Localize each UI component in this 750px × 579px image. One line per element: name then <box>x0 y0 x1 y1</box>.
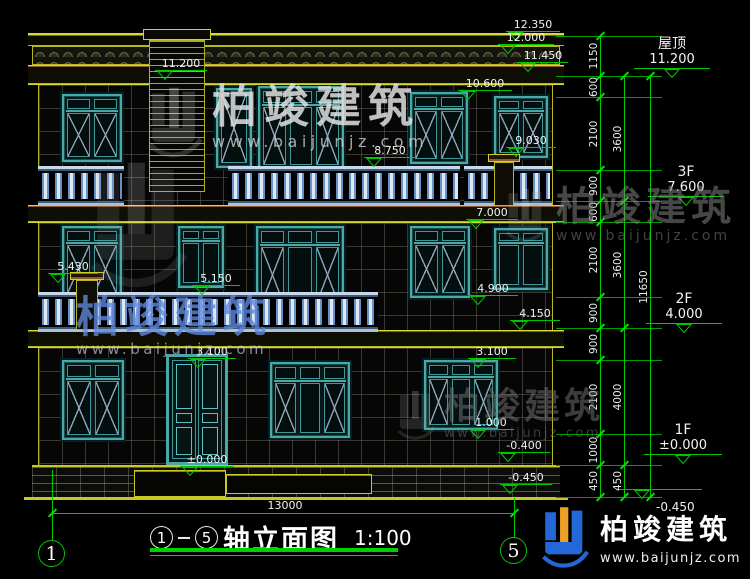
window-body <box>220 92 248 164</box>
window-pane <box>499 245 519 285</box>
window-pane <box>300 367 321 379</box>
dimension-value: 3600 <box>612 240 624 290</box>
elevation-triangle-icon <box>508 148 524 157</box>
door-panel <box>202 427 218 455</box>
elevation-triangle-icon <box>194 286 210 295</box>
elevation-value: 3.100 <box>188 346 236 358</box>
stair-bulkhead-cap <box>143 29 211 40</box>
window-body <box>66 112 118 158</box>
brand-text: 柏竣建筑 www.baijunjz.com <box>600 508 741 566</box>
floor-name: 屋顶 <box>634 36 710 52</box>
title-scale: 1:100 <box>354 526 412 550</box>
elevation-triangle-icon <box>500 45 516 54</box>
elevation-triangle-icon <box>366 158 382 167</box>
window <box>270 362 350 438</box>
elevation-triangle-icon <box>470 296 486 305</box>
window-pane <box>95 381 119 435</box>
elevation-marker: 3.100 <box>468 346 516 368</box>
dimension-value: 600 <box>588 62 600 112</box>
floor-label-3f: 3F 7.600 <box>648 164 724 206</box>
door-panel <box>202 413 218 424</box>
grid-line-5 <box>514 498 515 538</box>
window-pane <box>288 231 311 243</box>
window <box>410 92 468 164</box>
window <box>216 88 252 168</box>
entrance-door <box>166 354 228 465</box>
elevation-marker: 7.000 <box>466 207 518 229</box>
window-pane <box>67 113 90 157</box>
window-pane <box>275 367 296 379</box>
dimension-value: 900 <box>588 319 600 369</box>
floor-level: 7.600 <box>648 180 724 195</box>
window-pane <box>415 231 438 241</box>
level-triangle-icon <box>664 69 680 78</box>
axis-dash <box>178 537 190 539</box>
window-pane <box>300 383 321 433</box>
parapet-coping <box>28 33 564 46</box>
window-body <box>274 382 346 434</box>
grid-bubble-1: 1 <box>38 540 65 567</box>
elevation-marker: 3.100 <box>188 346 236 368</box>
dimension-value: 2100 <box>588 235 600 285</box>
window-transom <box>498 232 544 244</box>
window-pane <box>499 233 519 241</box>
window-pane <box>429 379 448 425</box>
level-triangle-icon <box>676 324 692 333</box>
axis-circle-end: 5 <box>195 526 218 549</box>
elevation-marker: 11.450 <box>518 50 568 72</box>
window-body <box>414 244 466 294</box>
window-transom <box>414 230 466 244</box>
dimension-chain-line <box>624 76 625 497</box>
door-panel <box>176 413 192 424</box>
dimension-value: 2100 <box>588 109 600 159</box>
floor-name: 3F <box>648 164 724 180</box>
window-pane <box>263 107 286 165</box>
window-pane <box>415 245 438 293</box>
elevation-value: 11.200 <box>155 58 207 70</box>
window <box>62 94 122 162</box>
floor-level: ±0.000 <box>644 438 722 453</box>
window-body <box>414 110 464 160</box>
extension-line <box>556 465 662 466</box>
balusters <box>230 173 458 199</box>
elevation-value: 4.900 <box>468 283 518 295</box>
elevation-triangle-icon <box>157 71 173 80</box>
floor-level: 4.000 <box>646 307 722 322</box>
window-body <box>262 106 340 166</box>
elevation-marker: 5.430 <box>48 261 98 283</box>
elevation-value: 4.150 <box>510 308 560 320</box>
extension-line <box>556 170 662 171</box>
window-pane <box>429 365 448 375</box>
dimension-value: 600 <box>588 187 600 237</box>
balusters <box>40 173 122 199</box>
bottom-dimension-value: 13000 <box>240 499 330 512</box>
window-pane <box>183 231 199 239</box>
pillar <box>494 162 514 206</box>
window-pane <box>67 381 91 435</box>
roof-tile-course <box>32 46 560 65</box>
elevation-marker: 4.900 <box>468 283 518 305</box>
elevation-value: 1.000 <box>468 417 514 429</box>
elevation-marker: 1.000 <box>468 417 514 439</box>
window-transom <box>260 230 340 246</box>
grid-line-1 <box>52 470 53 540</box>
window-pane <box>94 231 117 241</box>
window-transom <box>274 366 346 382</box>
extension-line <box>556 222 662 223</box>
axis-circle-start: 1 <box>150 526 173 549</box>
dimension-value: 2100 <box>588 372 600 422</box>
floor-label-2f: 2F 4.000 <box>646 291 722 333</box>
bottom-dimension-line <box>52 513 514 514</box>
elevation-triangle-icon <box>502 485 518 494</box>
door-leaf <box>172 360 196 459</box>
window-pane <box>261 231 284 243</box>
window-transom <box>182 230 220 242</box>
window-pane <box>95 365 119 377</box>
floor-label-roof: 屋顶 11.200 <box>634 36 710 78</box>
dimension-value: 450 <box>588 456 600 506</box>
elevation-marker: 5.150 <box>192 273 240 295</box>
window-transom <box>414 96 464 110</box>
window-pane <box>499 101 519 109</box>
elevation-triangle-icon <box>500 453 516 462</box>
window-pane <box>67 231 90 241</box>
window-pane <box>316 231 339 243</box>
window-pane <box>94 99 117 109</box>
window-pane <box>275 383 296 433</box>
window-pane <box>415 111 437 159</box>
door-panel <box>202 364 218 409</box>
window-pane <box>523 233 543 241</box>
door-leaf <box>198 360 222 459</box>
window-transom <box>262 90 340 106</box>
window-body <box>498 244 544 286</box>
grid-bubble-5: 5 <box>500 537 527 564</box>
elevation-marker: 9.030 <box>506 135 556 157</box>
window <box>62 360 124 440</box>
elevation-value: 8.750 <box>364 145 416 157</box>
door-panel <box>176 364 192 409</box>
window-pane <box>523 245 543 285</box>
elevation-value: 12.000 <box>498 32 554 44</box>
elevation-drawing-canvas: 13000 1 5 屋顶 11.200 3F 7.600 2F 4.000 1F… <box>0 0 750 579</box>
elevation-value: 10.600 <box>458 78 512 90</box>
floor-name: 2F <box>646 291 722 307</box>
window-transom <box>66 98 118 112</box>
balustrade <box>38 166 124 206</box>
window-transom <box>66 230 118 244</box>
window-pane <box>67 365 91 377</box>
floor-level: 11.200 <box>634 52 710 67</box>
window-pane <box>324 383 345 433</box>
elevation-triangle-icon <box>190 359 206 368</box>
dimension-value: 3600 <box>612 114 624 164</box>
dimension-value: 4000 <box>612 372 624 422</box>
dimension-chain-line <box>600 36 601 497</box>
elevation-marker: 10.600 <box>458 78 512 100</box>
window-pane <box>441 111 463 159</box>
elevation-value: 7.000 <box>466 207 518 219</box>
watermark-url: www.baijunjz.com <box>556 228 736 244</box>
elevation-value: 9.030 <box>506 135 556 147</box>
elevation-triangle-icon <box>460 91 476 100</box>
elevation-triangle-icon <box>468 220 484 229</box>
extension-line <box>556 201 662 202</box>
window-body <box>66 380 120 436</box>
elevation-value: 12.350 <box>506 19 560 31</box>
window <box>494 228 548 290</box>
dimension-value: 450 <box>612 456 624 506</box>
title-underline-thin <box>150 555 398 556</box>
elevation-marker: -0.450 <box>500 472 552 494</box>
floor-label-1f: 1F ±0.000 <box>644 422 722 464</box>
door-panel <box>176 427 192 455</box>
extension-line <box>556 360 662 361</box>
elevation-marker: 4.150 <box>510 308 560 330</box>
elevation-value: -0.400 <box>498 440 550 452</box>
level-line-minus450 <box>616 489 702 490</box>
floor-name: 1F <box>644 422 722 438</box>
window-pane <box>221 93 247 163</box>
level-triangle-icon <box>675 455 691 464</box>
elevation-value: 5.150 <box>192 273 240 285</box>
elevation-triangle-icon <box>182 467 198 476</box>
window-pane <box>290 107 313 165</box>
elevation-triangle-icon <box>50 274 66 283</box>
elevation-value: 11.450 <box>518 50 568 62</box>
brand-url: www.baijunjz.com <box>600 551 741 566</box>
window-pane <box>203 231 219 239</box>
elevation-triangle-icon <box>512 321 528 330</box>
window-pane <box>442 231 465 241</box>
elevation-marker: -0.400 <box>498 440 550 462</box>
balustrade <box>228 166 460 206</box>
window-pane <box>290 91 313 103</box>
brand-logo-icon <box>540 504 590 570</box>
window-pane <box>67 99 90 109</box>
window-pane <box>523 101 543 109</box>
brand-name: 柏竣建筑 <box>600 508 741 548</box>
window-pane <box>263 91 286 103</box>
elevation-marker: ±0.000 <box>180 454 234 476</box>
level-triangle-icon <box>634 490 650 499</box>
window-pane <box>415 97 437 107</box>
elevation-triangle-icon <box>520 63 536 72</box>
brand-logo-block: 柏竣建筑 www.baijunjz.com <box>540 504 741 570</box>
elevation-value: -0.450 <box>500 472 552 484</box>
elevation-value: 5.430 <box>48 261 98 273</box>
elevation-value: ±0.000 <box>180 454 234 466</box>
porch-platform <box>226 474 372 494</box>
window-pane <box>324 367 345 379</box>
window-transom <box>498 100 544 112</box>
elevation-marker: 8.750 <box>364 145 416 167</box>
elevation-triangle-icon <box>470 359 486 368</box>
pillar <box>76 280 98 330</box>
elevation-marker: 11.200 <box>155 58 207 80</box>
elevation-triangle-icon <box>470 430 486 439</box>
window <box>410 226 470 298</box>
title-underline <box>150 548 398 552</box>
window-pane <box>94 113 117 157</box>
window <box>258 86 344 170</box>
window-pane <box>442 245 465 293</box>
extension-line <box>556 97 662 98</box>
window-pane <box>316 91 339 103</box>
window-pane <box>316 107 339 165</box>
window-transom <box>66 364 120 380</box>
elevation-value: 3.100 <box>468 346 516 358</box>
level-triangle-icon <box>678 197 694 206</box>
